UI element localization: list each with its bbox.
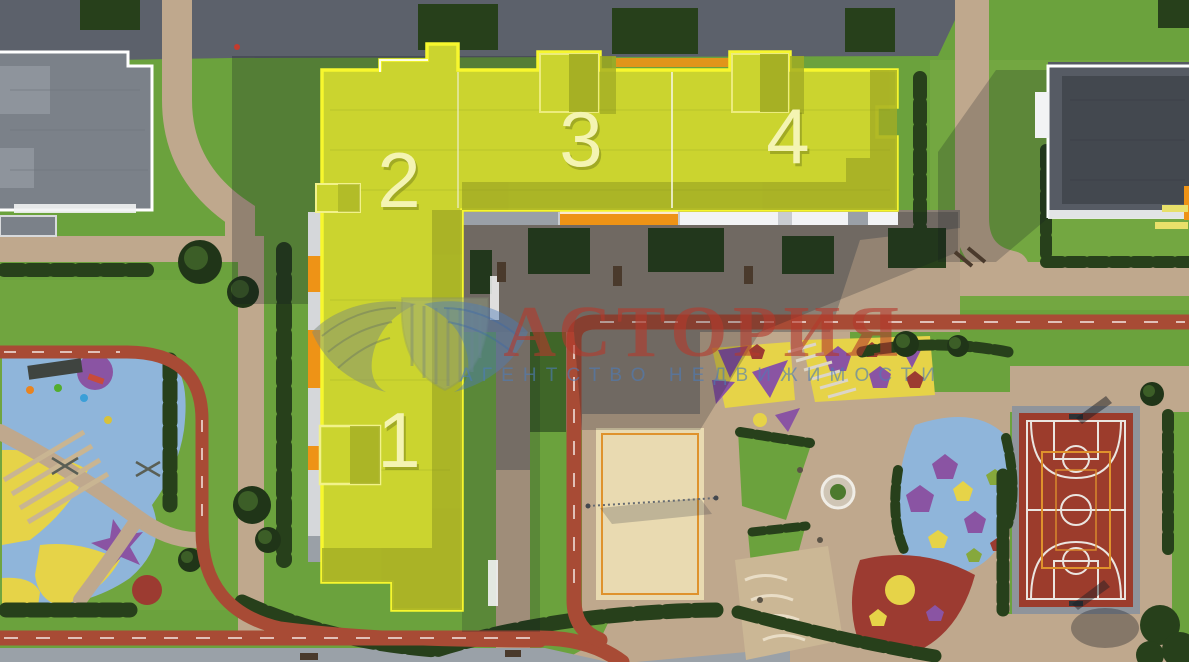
building-section-1[interactable]: [322, 210, 462, 610]
sand-volleyball-court: [586, 428, 719, 600]
road-marker-dot: [234, 44, 240, 50]
parking-marking: [1162, 205, 1188, 212]
masterplan-stage: 1 2 3 4 АСТОРИЯ АГЕНТСТВО НЕДВИЖИМОСТИ: [0, 0, 1189, 662]
building-section-3[interactable]: [458, 52, 672, 210]
watermark-title: АСТОРИЯ: [503, 291, 904, 372]
basketball-court: [1012, 396, 1140, 648]
parking-marking: [1155, 222, 1188, 229]
building-section-4[interactable]: [672, 52, 897, 210]
watermark-subtitle: АГЕНТСТВО НЕДВИЖИМОСТИ: [460, 365, 944, 386]
building-section-2[interactable]: [322, 44, 458, 210]
neighbor-building-top-left: [0, 52, 152, 236]
masterplan-svg: 1 2 3 4 АСТОРИЯ АГЕНТСТВО НЕДВИЖИМОСТИ: [0, 0, 1189, 662]
neighbor-building-top-right: [1035, 62, 1189, 229]
